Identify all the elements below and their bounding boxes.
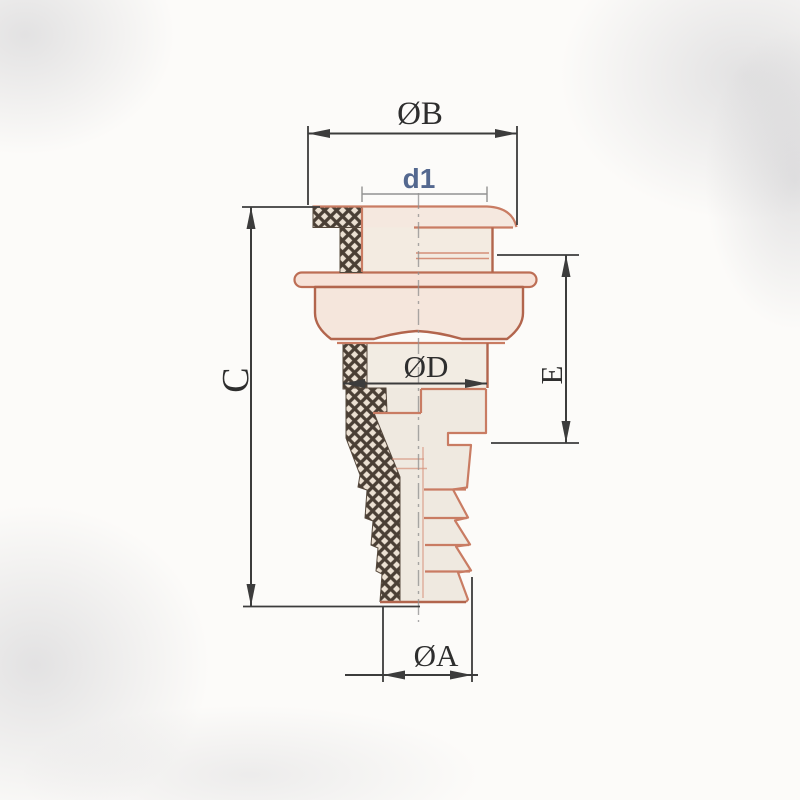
dim-b-label: ØB [397,96,443,132]
arrow-right-icon [495,129,517,138]
dim-d-label: ØD [404,349,449,384]
arrow-down-icon [562,421,571,443]
arrow-left-icon [308,129,330,138]
arrow-up-icon [562,255,571,277]
arrow-down-icon [247,584,256,606]
scanned-drawing-page: ØB d1 C ØD E ØA [0,0,800,800]
dim-d1-label: d1 [403,163,436,194]
dim-a-label: ØA [414,638,459,673]
locknut-washer [295,273,537,288]
dim-d1: d1 [362,163,487,202]
hatch-neck-upper-wall [340,228,362,273]
dim-e-label: E [534,366,569,385]
arrow-up-icon [247,207,256,229]
hatch-head-wall [313,206,362,228]
fitting-body [295,206,537,602]
dim-c-label: C [215,367,257,392]
technical-drawing: ØB d1 C ØD E ØA [0,0,800,800]
arrow-left-icon [383,671,405,680]
